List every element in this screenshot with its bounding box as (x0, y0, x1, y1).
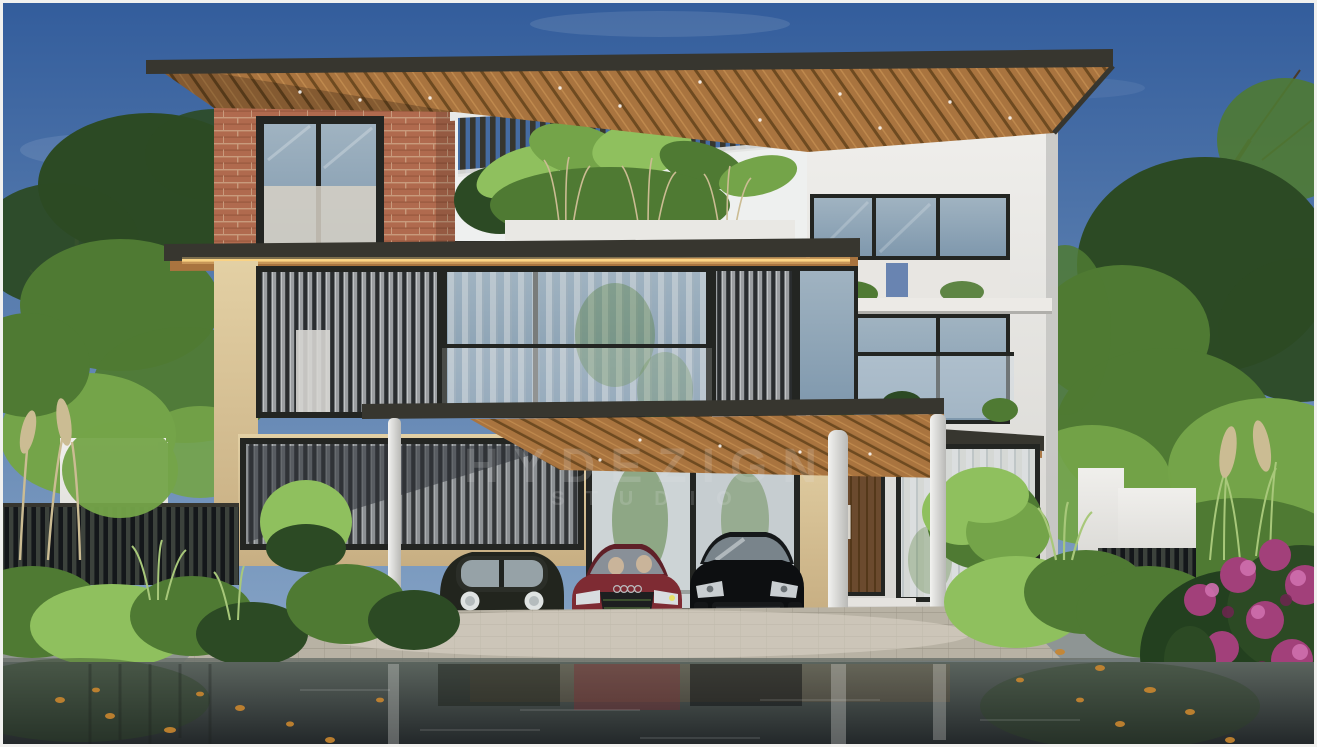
rendering-canvas: HYDEZIGN STUDIO (0, 0, 1317, 747)
car-reflection (438, 664, 560, 706)
column-reflection (388, 664, 399, 744)
brick-window (256, 116, 384, 256)
door-handle (848, 505, 851, 539)
interior-blue-panel (886, 263, 908, 297)
louver-panel-right (712, 266, 796, 416)
wet-road (3, 649, 1314, 744)
watermark-line1: HYDEZIGN (464, 440, 832, 493)
glass-right-segment (796, 266, 858, 414)
watermark-line2: STUDIO (551, 488, 753, 510)
louver-panel-left (256, 266, 442, 418)
villa-scene: HYDEZIGN STUDIO (3, 3, 1314, 744)
column (930, 414, 946, 638)
brick-volume (214, 104, 460, 258)
glass-balustrade-rail (442, 344, 712, 348)
